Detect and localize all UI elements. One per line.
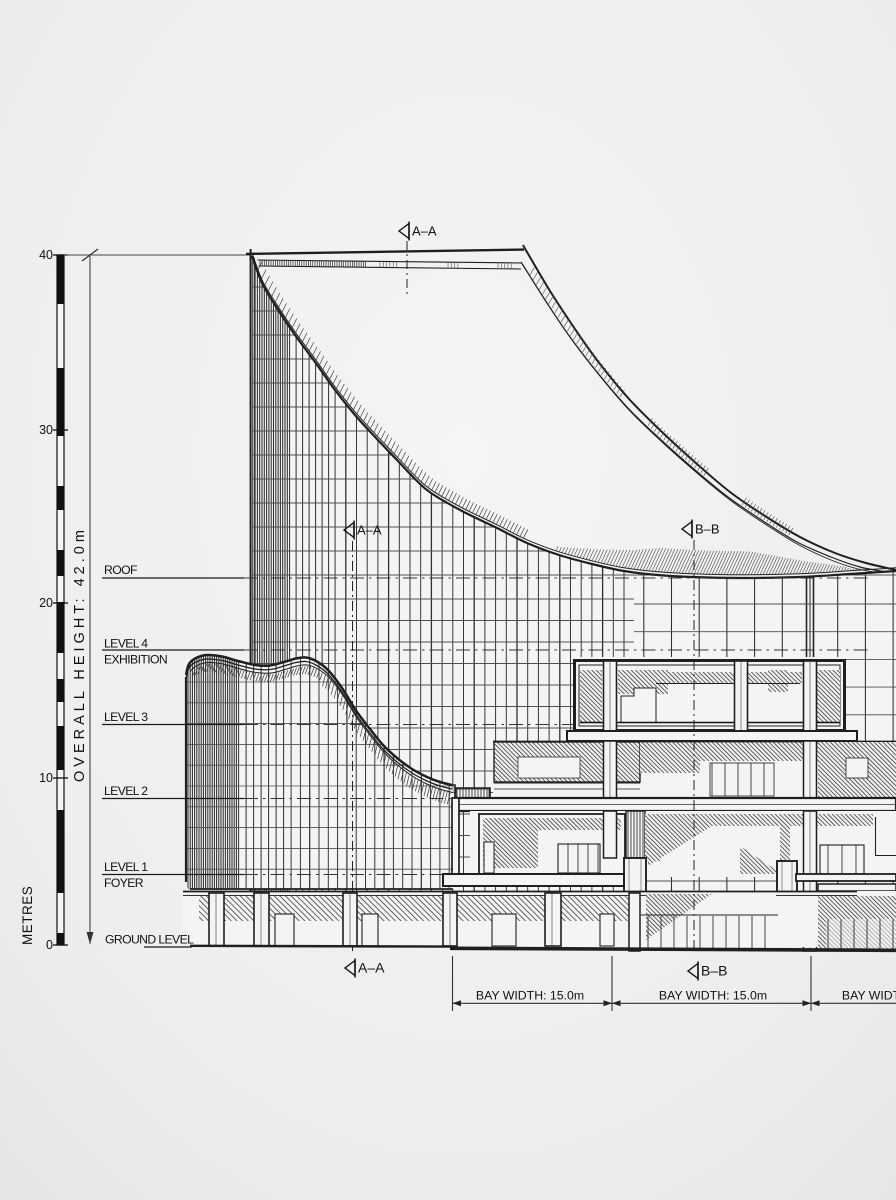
svg-text:10: 10 [39, 771, 53, 785]
svg-text:BAY WIDTH: 15.0m: BAY WIDTH: 15.0m [476, 989, 584, 1003]
svg-text:40: 40 [39, 248, 53, 262]
svg-text:LEVEL 3: LEVEL 3 [104, 710, 148, 724]
svg-text:30: 30 [39, 423, 53, 437]
svg-text:GROUND LEVEL: GROUND LEVEL [105, 933, 194, 947]
svg-text:BAY WIDTH: 15.0m: BAY WIDTH: 15.0m [842, 989, 896, 1003]
svg-text:20: 20 [39, 596, 53, 610]
svg-text:METRES: METRES [20, 886, 35, 945]
svg-text:B–B: B–B [695, 522, 720, 537]
svg-text:EXHIBITION: EXHIBITION [104, 653, 167, 667]
svg-text:A–A: A–A [412, 224, 437, 239]
svg-text:A–A: A–A [357, 523, 382, 538]
svg-text:LEVEL 2: LEVEL 2 [104, 784, 148, 798]
svg-text:OVERALL HEIGHT: 42.0m: OVERALL HEIGHT: 42.0m [72, 526, 88, 782]
svg-text:0: 0 [46, 938, 53, 952]
svg-text:LEVEL 1: LEVEL 1 [104, 860, 148, 874]
svg-text:ROOF: ROOF [104, 563, 137, 577]
svg-text:B–B: B–B [701, 963, 727, 979]
svg-text:LEVEL 4: LEVEL 4 [104, 637, 148, 651]
svg-text:A–A: A–A [358, 960, 385, 976]
svg-text:FOYER: FOYER [104, 876, 144, 890]
svg-text:BAY WIDTH: 15.0m: BAY WIDTH: 15.0m [659, 989, 767, 1003]
